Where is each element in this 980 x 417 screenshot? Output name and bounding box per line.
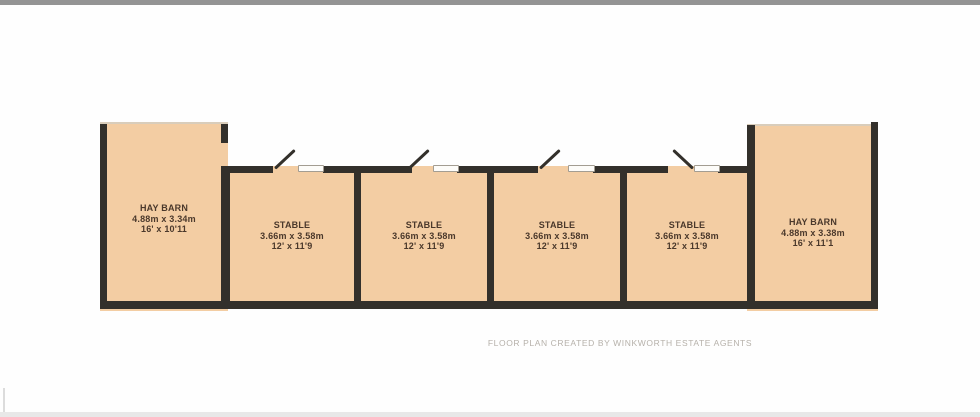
wall-haybarn-left-stub xyxy=(221,124,228,143)
floorplan-credit-caption: FLOOR PLAN CREATED BY WINKWORTH ESTATE A… xyxy=(400,338,840,348)
scan-top-edge xyxy=(0,0,980,5)
wall-bottom xyxy=(100,301,878,309)
room-size-imperial: 12' x 11'9 xyxy=(497,241,617,252)
wall-haybarn-right-outer xyxy=(871,122,878,309)
label-stable-3: STABLE 3.66m x 3.58m 12' x 11'9 xyxy=(497,220,617,252)
room-size-metric: 3.66m x 3.58m xyxy=(232,231,352,242)
door-sill-stable1 xyxy=(298,165,324,172)
wall-top-segment-5 xyxy=(718,166,750,173)
wall-partition-stable1-2 xyxy=(354,166,361,309)
room-size-imperial: 12' x 11'9 xyxy=(364,241,484,252)
scan-bottom-edge xyxy=(0,412,980,417)
room-name: HAY BARN xyxy=(753,217,873,228)
room-size-imperial: 16' x 10'11 xyxy=(104,224,224,235)
label-hay-barn-left: HAY BARN 4.88m x 3.34m 16' x 10'11 xyxy=(104,203,224,235)
room-name: STABLE xyxy=(497,220,617,231)
room-name: STABLE xyxy=(627,220,747,231)
room-size-imperial: 12' x 11'9 xyxy=(232,241,352,252)
room-size-metric: 3.66m x 3.58m xyxy=(364,231,484,242)
room-name: STABLE xyxy=(232,220,352,231)
wall-top-segment-3 xyxy=(457,166,538,173)
room-size-imperial: 16' x 11'1 xyxy=(753,238,873,249)
room-size-metric: 3.66m x 3.58m xyxy=(497,231,617,242)
wall-top-segment-1 xyxy=(225,166,273,173)
room-size-metric: 4.88m x 3.34m xyxy=(104,214,224,225)
label-stable-4: STABLE 3.66m x 3.58m 12' x 11'9 xyxy=(627,220,747,252)
label-hay-barn-right: HAY BARN 4.88m x 3.38m 16' x 11'1 xyxy=(753,217,873,249)
room-size-metric: 4.88m x 3.38m xyxy=(753,228,873,239)
wall-partition-stable2-3 xyxy=(487,166,494,309)
room-size-imperial: 12' x 11'9 xyxy=(627,241,747,252)
door-sill-stable2 xyxy=(433,165,459,172)
door-sill-stable3 xyxy=(568,165,595,172)
room-size-metric: 3.66m x 3.58m xyxy=(627,231,747,242)
room-name: HAY BARN xyxy=(104,203,224,214)
label-stable-2: STABLE 3.66m x 3.58m 12' x 11'9 xyxy=(364,220,484,252)
wall-haybarn-stable1 xyxy=(221,166,230,309)
label-stable-1: STABLE 3.66m x 3.58m 12' x 11'9 xyxy=(232,220,352,252)
wall-partition-stable3-4 xyxy=(620,166,627,309)
wall-top-segment-2 xyxy=(323,166,412,173)
room-name: STABLE xyxy=(364,220,484,231)
door-sill-stable4 xyxy=(694,165,720,172)
floorplan-page: HAY BARN 4.88m x 3.34m 16' x 10'11 STABL… xyxy=(0,0,980,417)
wall-top-segment-4 xyxy=(593,166,668,173)
